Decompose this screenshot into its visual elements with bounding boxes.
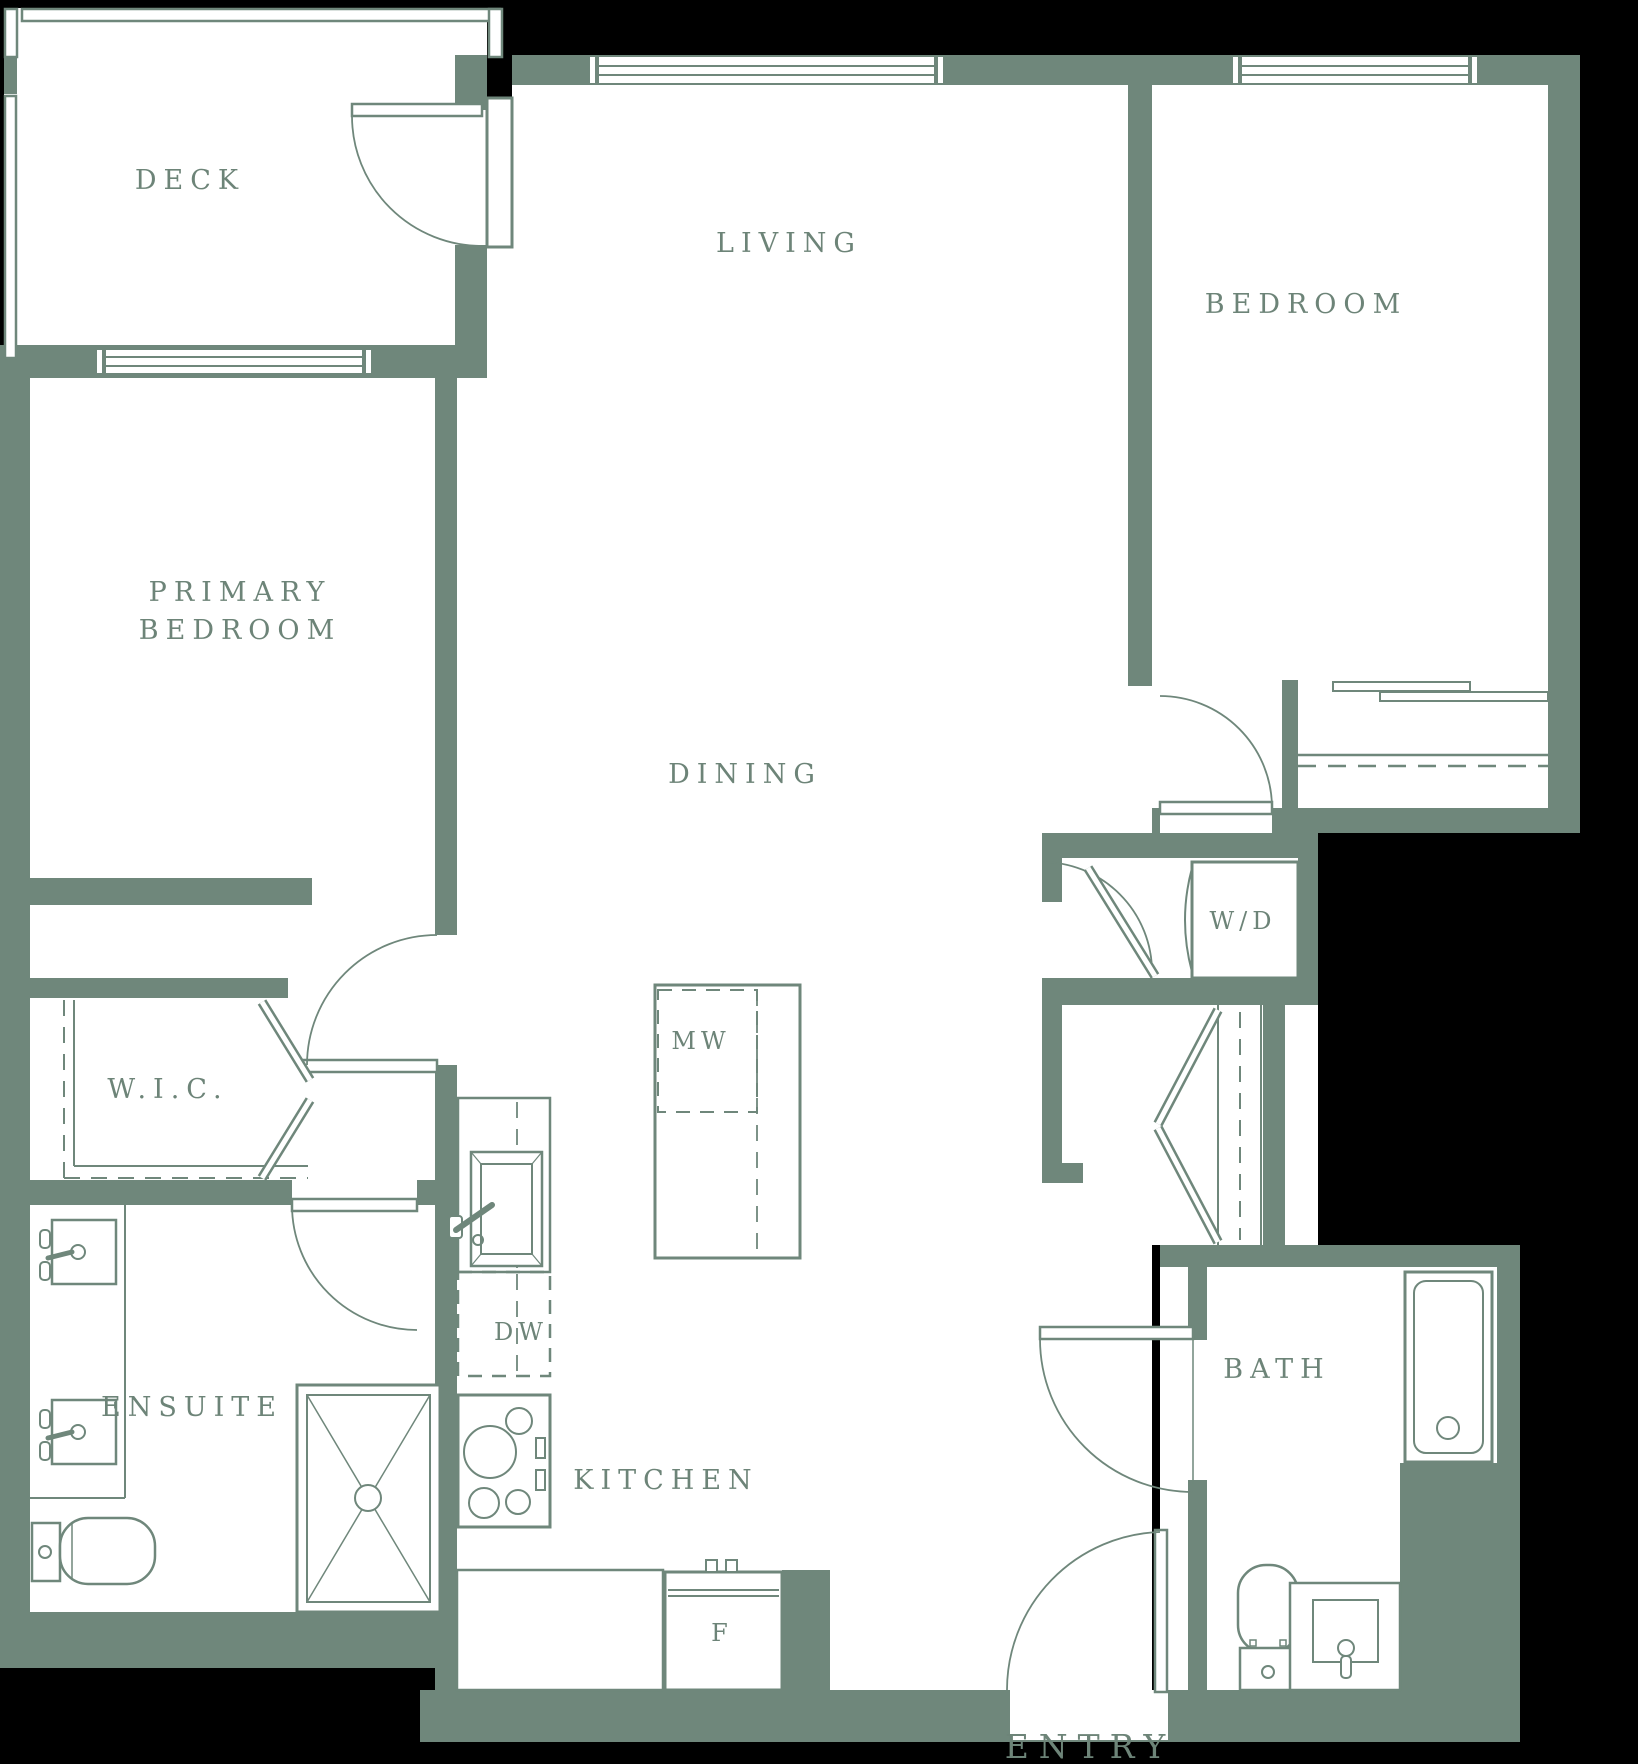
tub-outline	[1405, 1272, 1492, 1462]
stove-outline	[458, 1395, 550, 1527]
wall-bath-se-mass	[1400, 1463, 1520, 1692]
door-leaf	[1155, 1530, 1167, 1692]
island-outline	[655, 985, 800, 1258]
wall-ensuite-door-stub	[417, 1180, 435, 1205]
wall-living-bedroom	[1128, 85, 1152, 686]
deck-rail-right-return	[489, 9, 502, 57]
label-dining: DINING	[668, 759, 822, 790]
bedroom-window	[1232, 56, 1478, 84]
wall-right-exterior	[1548, 55, 1580, 833]
label-microwave: MW	[671, 1027, 730, 1055]
door-leaf	[1040, 1327, 1193, 1339]
wall-wd-bottom	[1042, 978, 1318, 1005]
faucet-handle	[40, 1442, 50, 1460]
toilet-tank	[1240, 1648, 1296, 1690]
mask-bottom	[0, 1742, 1638, 1764]
window-frame	[1232, 56, 1478, 84]
door-leaf	[302, 1060, 437, 1072]
bedroom-floor	[1128, 55, 1580, 833]
shower-drain	[355, 1485, 381, 1511]
label-washer-dryer: W/D	[1210, 907, 1277, 935]
toilet-bowl	[60, 1518, 155, 1584]
toilet-tank	[32, 1523, 60, 1581]
label-primary-line2: BEDROOM	[139, 615, 341, 646]
wall-wic-bottom	[0, 1180, 292, 1205]
kitchen-island	[655, 985, 800, 1258]
label-primary-line1: PRIMARY	[149, 577, 332, 608]
ensuite-sink-1	[40, 1220, 116, 1284]
primary-bedroom-window	[96, 349, 372, 374]
deck-rail-left	[5, 96, 16, 358]
sliding-door-panel	[1333, 682, 1470, 691]
wall-wic-top	[0, 978, 288, 998]
faucet-handle	[40, 1262, 50, 1280]
mask-left-sliver	[0, 8, 4, 345]
wall-hall-left	[1042, 1005, 1062, 1183]
ensuite-shower	[297, 1385, 440, 1612]
mask-right-strip	[1580, 55, 1638, 835]
label-kitchen: KITCHEN	[573, 1465, 758, 1496]
deck-rail-left-top	[5, 9, 17, 57]
faucet-handle	[1341, 1656, 1351, 1678]
floor-plan-drawing: DECK LIVING BEDROOM PRIMARY BEDROOM DINI…	[0, 0, 1638, 1764]
wall-bath-left-lower	[1188, 1480, 1207, 1692]
kitchen-lower-counter	[457, 1570, 663, 1690]
wall-pantry-right	[1263, 1005, 1285, 1245]
window-frame	[589, 56, 944, 84]
bath-vanity	[1290, 1583, 1400, 1690]
label-entry: ENTRY	[1005, 1727, 1176, 1764]
label-wic: W.I.C.	[107, 1074, 228, 1105]
label-bath: BATH	[1223, 1354, 1330, 1385]
door-leaf	[1160, 802, 1272, 814]
stove	[458, 1395, 550, 1527]
living-window	[589, 56, 944, 84]
window-frame	[96, 349, 372, 374]
bathtub	[1405, 1272, 1492, 1462]
wall-deck-right-lower	[455, 245, 487, 345]
wall-wd-top	[1042, 833, 1318, 858]
sliding-door-panel	[1380, 692, 1548, 701]
mask-notch	[1318, 833, 1638, 1245]
faucet-handle	[40, 1410, 50, 1428]
wall-hall-left-foot	[1042, 1163, 1083, 1183]
floor-plan-page: DECK LIVING BEDROOM PRIMARY BEDROOM DINI…	[0, 0, 1638, 1764]
mask-right-bottom	[1520, 1245, 1638, 1764]
door-leaf	[292, 1199, 417, 1211]
wall-bottom-exterior	[420, 1690, 1580, 1742]
label-bedroom: BEDROOM	[1205, 289, 1407, 320]
wall-wd-right	[1298, 858, 1318, 978]
faucet-handle	[40, 1230, 50, 1248]
wall-fridge-right	[782, 1570, 830, 1692]
fridge-hinge	[726, 1560, 737, 1572]
wall-primary-bottom	[0, 878, 312, 905]
wall-primary-living	[435, 378, 457, 935]
label-fridge: F	[711, 1619, 733, 1647]
mask-top-left	[0, 0, 487, 8]
wall-bath-top	[1160, 1245, 1520, 1267]
wall-wd-left-stub	[1042, 858, 1062, 902]
fridge-hinge	[706, 1560, 717, 1572]
label-ensuite: ENSUITE	[101, 1392, 283, 1423]
ensuite-toilet	[32, 1518, 155, 1584]
deck-door-frame	[487, 98, 512, 247]
wall-left-exterior	[0, 345, 30, 1668]
label-living: LIVING	[716, 228, 862, 259]
door-leaf	[352, 104, 482, 116]
mask-top	[512, 0, 1638, 55]
label-deck: DECK	[135, 165, 245, 196]
wall-ensuite-bottom	[0, 1612, 457, 1668]
wall-bedroom-south-right	[1272, 808, 1580, 833]
deck-rail-top	[22, 9, 500, 21]
wall-bedroom-closet-left	[1282, 680, 1298, 808]
label-dishwasher: DW	[494, 1318, 548, 1346]
